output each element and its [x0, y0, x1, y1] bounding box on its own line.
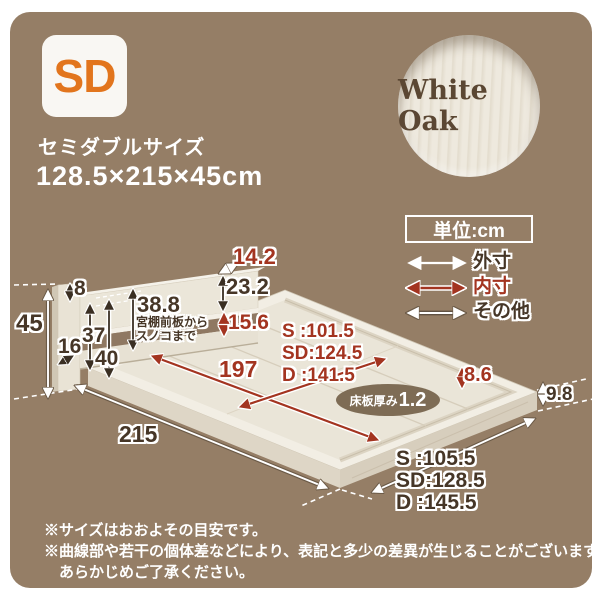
- dim-rim-height: 8.6: [464, 365, 492, 385]
- dim-38-8: 38.8: [137, 294, 180, 316]
- note-line-1: ※サイズはおおよその目安です。: [44, 519, 267, 540]
- note-line-3: あらかじめご了承ください。: [59, 561, 254, 582]
- dim-23-2: 23.2: [226, 276, 269, 298]
- dim-total-height: 45: [16, 312, 43, 336]
- dim-shelf-depth: 14.2: [233, 246, 276, 268]
- dim-inner-length: 197: [219, 358, 257, 381]
- dim-37: 37: [82, 325, 105, 346]
- legend-outer-label: 外寸: [473, 252, 511, 271]
- legend-other-label: その他: [473, 302, 530, 321]
- dim-inner-width-sd: SD:124.5: [282, 344, 362, 363]
- size-badge-label: SD: [54, 49, 116, 103]
- material-swatch: White Oak: [398, 35, 540, 177]
- unit-label: 単位:cm: [433, 216, 505, 243]
- size-badge: SD: [42, 35, 127, 117]
- dim-outer-width-d: D :145.5: [396, 492, 477, 513]
- dim-16: 16: [58, 336, 81, 357]
- board-thickness-value: 1.2: [399, 389, 427, 412]
- dim-15-6: 15.6: [228, 312, 269, 333]
- dim-frame-height: 9.8: [546, 385, 572, 404]
- board-thickness-callout: 床板厚み 1.2: [336, 384, 440, 416]
- dim-outer-width-sd: SD:128.5: [396, 470, 485, 491]
- board-thickness-label: 床板厚み: [350, 392, 398, 409]
- size-dimensions: 128.5×215×45cm: [36, 161, 263, 192]
- note-line-2: ※曲線部や若干の個体差などにより、表記と多少の差異が生じることがございます。: [44, 540, 600, 561]
- dim-38-8-note1: 宮棚前板から: [136, 316, 208, 328]
- dim-total-length: 215: [119, 423, 157, 446]
- size-name: セミダブルサイズ: [38, 131, 205, 160]
- dim-outer-width-s: S :105.5: [396, 448, 475, 469]
- legend-inner-label: 内寸: [473, 277, 511, 296]
- material-name: White Oak: [398, 75, 540, 137]
- unit-box: 単位:cm: [405, 215, 533, 243]
- dim-inner-width-s: S :101.5: [282, 322, 354, 341]
- dim-38-8-note2: スノコまで: [136, 330, 196, 342]
- dim-inner-width-d: D :141.5: [282, 366, 355, 385]
- dim-headboard-top: 8: [74, 278, 86, 299]
- dim-40: 40: [95, 348, 118, 369]
